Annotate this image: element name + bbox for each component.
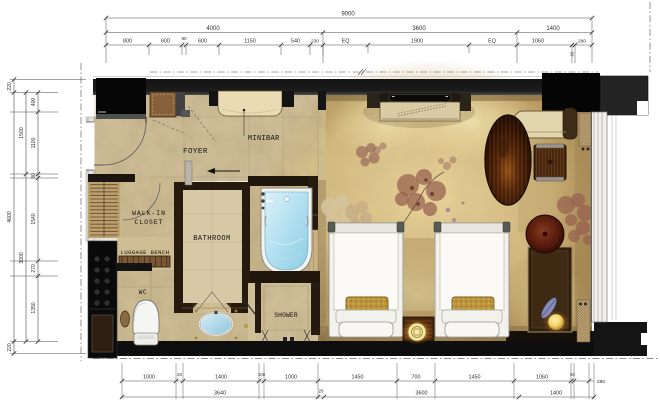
svg-text:270: 270: [31, 264, 37, 273]
svg-text:3000: 3000: [19, 252, 25, 264]
svg-text:1150: 1150: [244, 39, 256, 45]
svg-text:280: 280: [578, 39, 586, 45]
svg-text:1000: 1000: [143, 375, 155, 381]
svg-text:1060: 1060: [532, 39, 544, 45]
svg-text:CLOSET: CLOSET: [134, 219, 163, 226]
svg-text:1450: 1450: [352, 375, 364, 381]
svg-text:LUGGAGE BENCH: LUGGAGE BENCH: [121, 249, 170, 256]
svg-text:800: 800: [123, 39, 132, 45]
svg-text:600: 600: [198, 39, 207, 45]
svg-text:540: 540: [291, 39, 300, 45]
svg-text:80: 80: [181, 36, 187, 41]
svg-text:220: 220: [7, 82, 13, 91]
svg-text:1500: 1500: [19, 127, 25, 139]
svg-text:4000: 4000: [206, 26, 220, 32]
svg-text:SHOWER: SHOWER: [274, 312, 298, 319]
svg-text:1540: 1540: [31, 213, 37, 224]
svg-text:WC: WC: [139, 289, 147, 296]
svg-text:1350: 1350: [31, 302, 37, 313]
svg-text:400: 400: [31, 98, 37, 107]
svg-text:230: 230: [311, 39, 319, 45]
svg-text:20: 20: [177, 372, 182, 377]
svg-text:4600: 4600: [7, 211, 13, 223]
svg-text:1400: 1400: [550, 391, 562, 397]
svg-text:1450: 1450: [469, 375, 481, 381]
svg-text:700: 700: [412, 375, 421, 381]
svg-text:EQ: EQ: [488, 39, 496, 45]
svg-text:1100: 1100: [31, 137, 37, 148]
svg-text:1060: 1060: [536, 375, 548, 381]
svg-text:600: 600: [161, 39, 170, 45]
svg-text:280: 280: [597, 379, 605, 385]
svg-text:BATHROOM: BATHROOM: [193, 235, 231, 243]
svg-text:1900: 1900: [411, 39, 423, 45]
svg-text:1400: 1400: [215, 375, 227, 381]
svg-text:220: 220: [7, 343, 13, 352]
svg-text:3600: 3600: [416, 391, 428, 397]
svg-text:WALK-IN: WALK-IN: [132, 210, 166, 217]
svg-text:9000: 9000: [341, 12, 355, 18]
svg-text:1400: 1400: [546, 26, 560, 32]
svg-text:20: 20: [319, 389, 324, 394]
svg-text:3640: 3640: [214, 391, 226, 397]
svg-text:MINIBAR: MINIBAR: [248, 135, 280, 143]
svg-text:3600: 3600: [412, 26, 426, 32]
svg-text:EQ: EQ: [342, 39, 350, 45]
svg-text:FOYER: FOYER: [183, 148, 208, 156]
svg-text:1000: 1000: [285, 375, 297, 381]
